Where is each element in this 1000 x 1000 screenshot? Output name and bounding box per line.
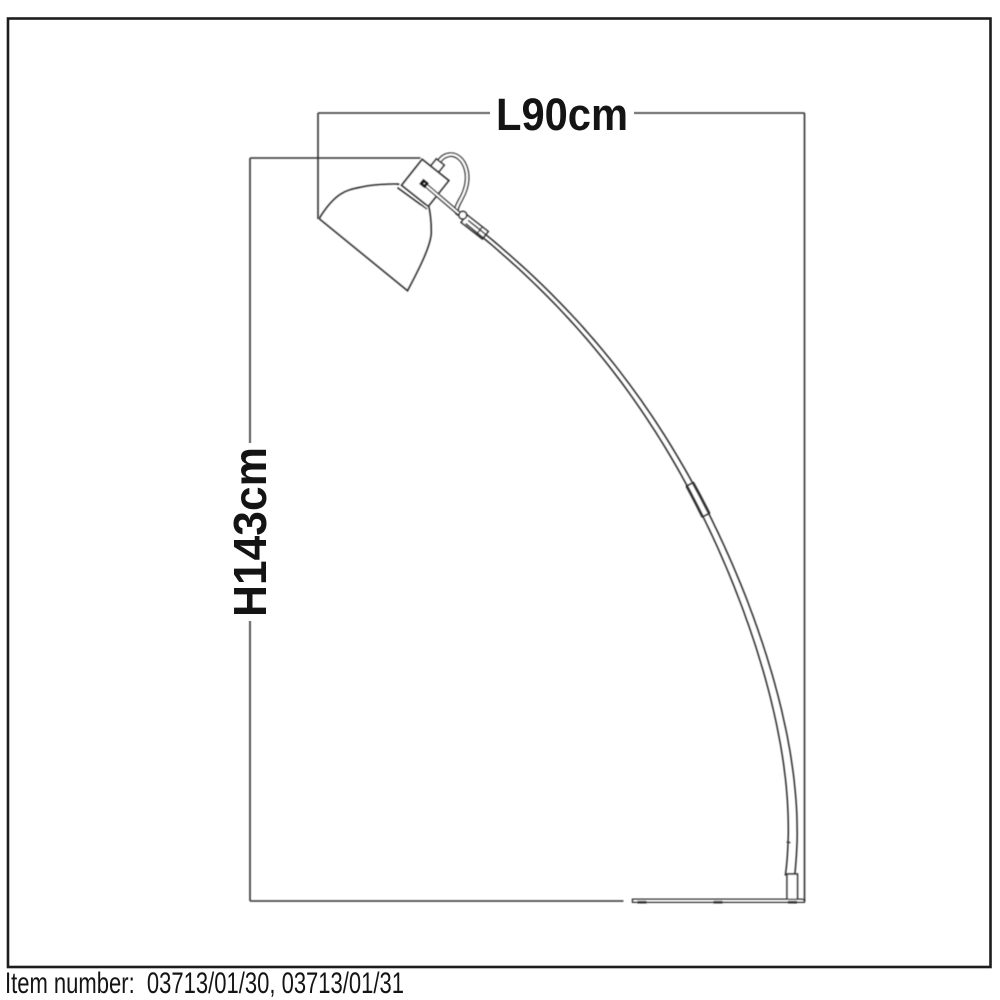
svg-text:Item number: 03713/01/30, 037: Item number: 03713/01/30, 03713/01/31	[5, 967, 404, 1000]
svg-text:H143cm: H143cm	[224, 447, 276, 617]
svg-text:L90cm: L90cm	[496, 89, 628, 140]
